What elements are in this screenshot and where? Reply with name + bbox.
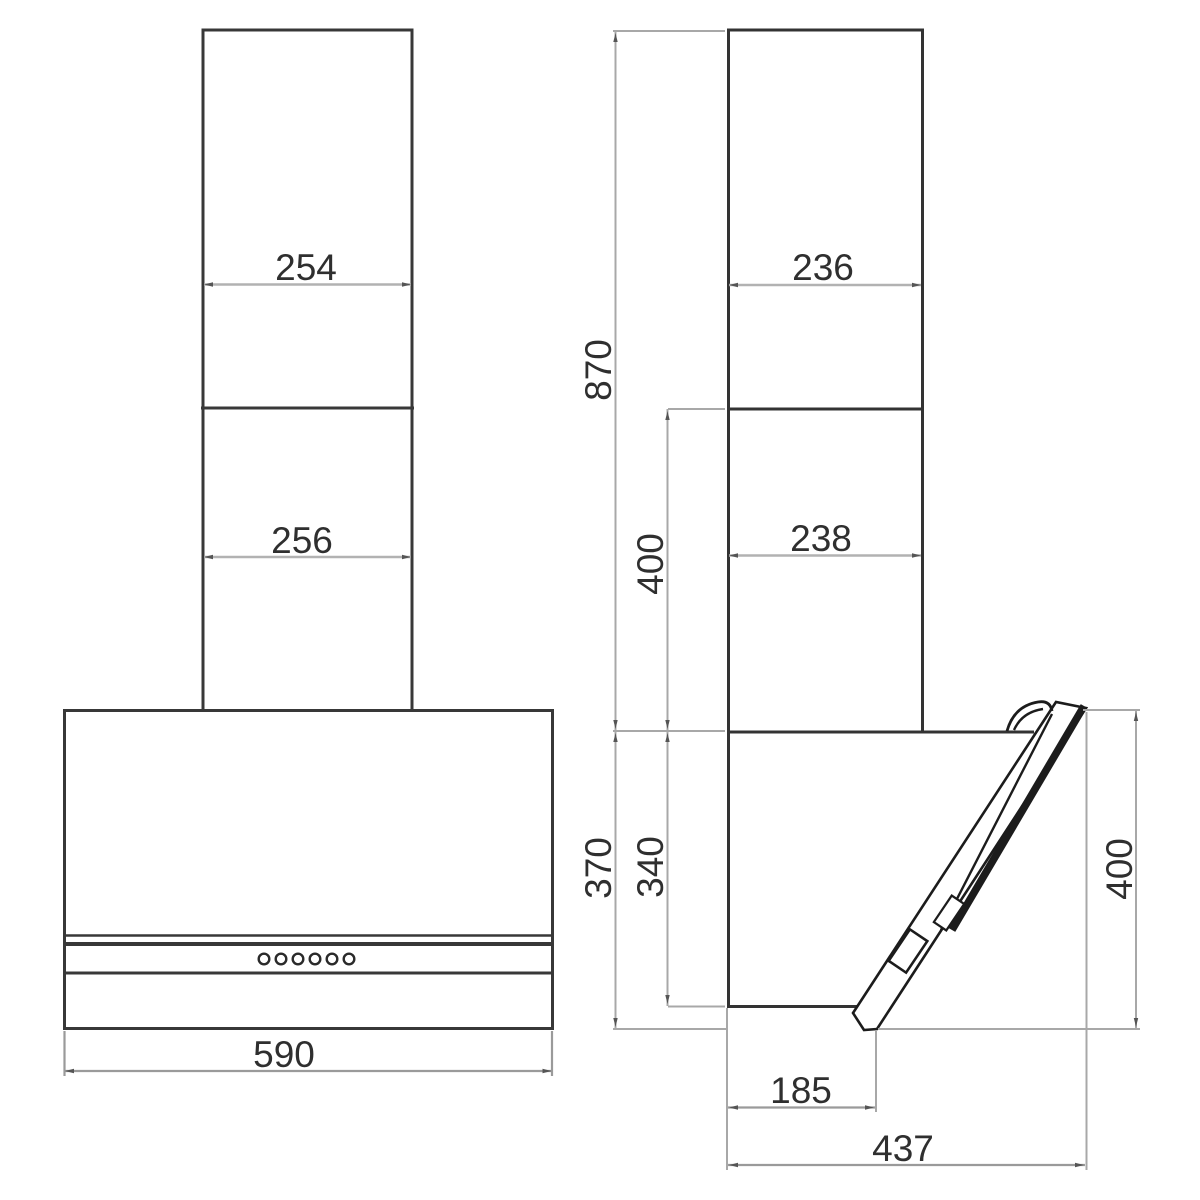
svg-text:256: 256 [271, 520, 333, 561]
svg-text:238: 238 [790, 518, 852, 559]
svg-text:370: 370 [578, 837, 619, 899]
svg-text:400: 400 [1099, 838, 1140, 900]
svg-text:400: 400 [630, 533, 671, 595]
svg-text:236: 236 [792, 247, 854, 288]
svg-text:437: 437 [872, 1128, 934, 1169]
svg-text:590: 590 [253, 1034, 315, 1075]
svg-text:254: 254 [275, 247, 337, 288]
svg-text:870: 870 [578, 339, 619, 401]
svg-text:340: 340 [630, 836, 671, 898]
svg-text:185: 185 [770, 1070, 832, 1111]
